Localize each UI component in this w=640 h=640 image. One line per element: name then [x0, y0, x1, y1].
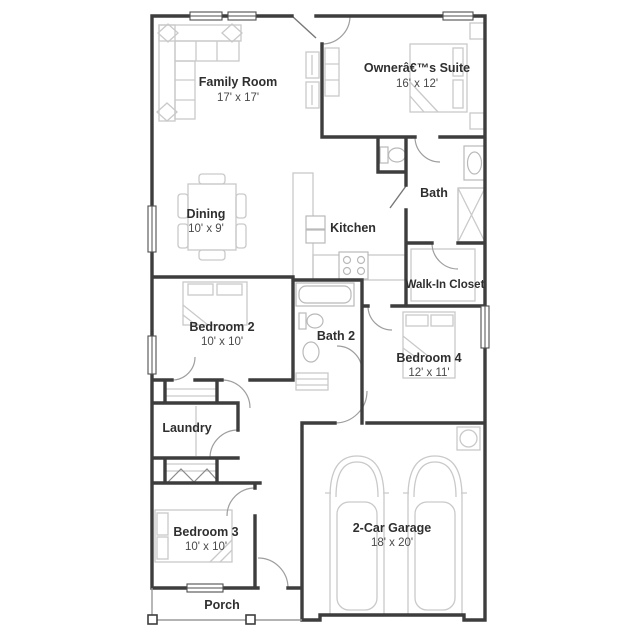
room-labels: Family Room 17' x 17' Ownerâ€™s Suite 16…	[162, 61, 484, 612]
walk-in-closet-door	[432, 243, 458, 269]
bedroom2-closet-door	[172, 357, 195, 380]
room-label-bedroom-2: Bedroom 2	[189, 320, 254, 334]
room-label-bath-2: Bath 2	[317, 329, 355, 343]
room-dims-bedroom-4: 12' x 11'	[408, 367, 449, 379]
window-icon	[228, 12, 256, 20]
floor-plan-page: Family Room 17' x 17' Ownerâ€™s Suite 16…	[0, 0, 640, 640]
water-heater-icon	[457, 427, 480, 450]
floor-plan-drawing: Family Room 17' x 17' Ownerâ€™s Suite 16…	[0, 0, 640, 640]
room-label-garage: 2-Car Garage	[353, 521, 432, 535]
dresser	[325, 48, 339, 96]
laundry-door	[210, 430, 238, 458]
shower-icon	[458, 188, 485, 242]
car-icon	[403, 456, 467, 616]
window-icon	[481, 306, 489, 348]
entry-angled-door	[292, 16, 316, 38]
room-label-walk-in-closet: Walk-In Closet	[406, 279, 485, 291]
room-label-kitchen: Kitchen	[330, 221, 376, 235]
window-icon	[148, 336, 156, 374]
bath2-sink-icon	[303, 342, 319, 362]
kitchen-sink-icon	[306, 216, 325, 243]
porch-post	[246, 615, 255, 624]
linen-closet	[296, 373, 328, 390]
bedroom2-bed	[183, 282, 247, 325]
owners-suite-door	[322, 16, 350, 44]
room-dims-garage: 18' x 20'	[371, 537, 413, 549]
porch-post	[148, 615, 157, 624]
room-label-bedroom-3: Bedroom 3	[173, 525, 238, 539]
window-icon	[443, 12, 473, 20]
front-door	[258, 558, 288, 588]
room-label-dining: Dining	[187, 207, 226, 221]
window-icon	[187, 584, 223, 592]
pantry-door-leaf	[390, 186, 406, 208]
closet-shelves	[411, 249, 475, 301]
owners-bed	[410, 23, 484, 129]
room-label-laundry: Laundry	[162, 421, 211, 435]
sectional-sofa	[157, 24, 242, 121]
car-icon	[325, 456, 389, 616]
room-label-porch: Porch	[204, 598, 239, 612]
window-icon	[148, 206, 156, 252]
room-dims-owners-suite: 16' x 12'	[396, 78, 438, 90]
bath2-door	[337, 346, 362, 371]
toilet-icon	[380, 147, 406, 163]
room-dims-family-room: 17' x 17'	[217, 92, 259, 104]
stove-icon	[339, 252, 368, 279]
bath-door	[415, 137, 440, 162]
room-dims-dining: 10' x 9'	[188, 223, 224, 235]
window-icon	[190, 12, 222, 20]
toilet2-icon	[299, 313, 323, 329]
media-console	[306, 52, 319, 108]
bath-sink-icon	[464, 146, 485, 180]
room-dims-bedroom-2: 10' x 10'	[201, 336, 243, 348]
room-label-bath: Bath	[420, 186, 448, 200]
room-label-owners-suite: Ownerâ€™s Suite	[364, 61, 470, 75]
bathtub-icon	[296, 283, 354, 306]
room-label-family-room: Family Room	[199, 75, 278, 89]
bedroom4-door	[368, 306, 392, 330]
bedroom2-closet-shelves	[166, 389, 216, 396]
room-dims-bedroom-3: 10' x 10'	[185, 541, 227, 553]
room-label-bedroom-4: Bedroom 4	[396, 351, 461, 365]
bedroom3-door	[227, 488, 255, 516]
